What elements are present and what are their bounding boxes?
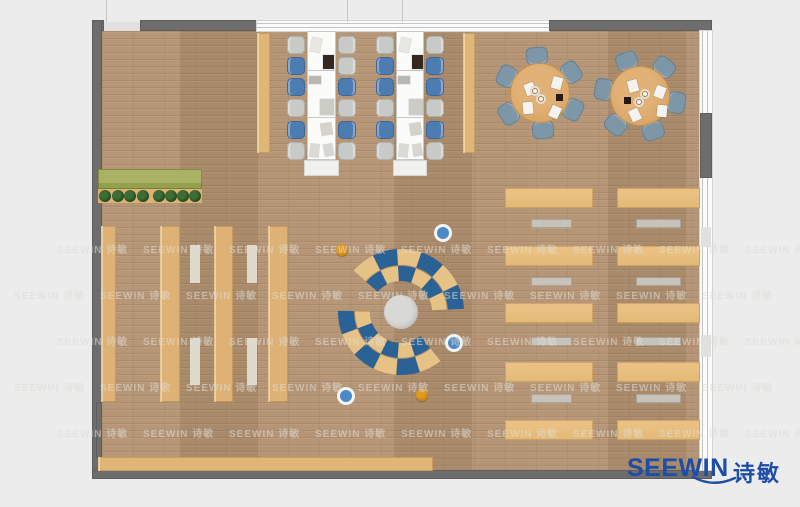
wall-top-light-gap	[104, 22, 140, 31]
watermark-text: SEEWIN 诗敏	[573, 333, 644, 348]
watermark-text: SEEWIN 诗敏	[143, 241, 214, 256]
office-chair	[287, 36, 305, 54]
watermark-text: SEEWIN 诗敏	[401, 333, 472, 348]
table-dark-item	[624, 97, 631, 104]
workstation-desk-divider-1-0	[396, 70, 424, 71]
watermark-text: SEEWIN 诗敏	[57, 333, 128, 348]
watermark-text: SEEWIN 诗敏	[702, 287, 773, 302]
window-mullion-2	[402, 0, 403, 22]
watermark-text: SEEWIN 诗敏	[487, 241, 558, 256]
watermark-text: SEEWIN 诗敏	[702, 379, 773, 394]
office-chair	[287, 99, 305, 117]
watermark-text: SEEWIN 诗敏	[14, 379, 85, 394]
watermark-text: SEEWIN 诗敏	[315, 425, 386, 440]
office-chair	[376, 36, 394, 54]
office-chair	[338, 99, 356, 117]
watermark-text: SEEWIN 诗敏	[315, 241, 386, 256]
watermark-text: SEEWIN 诗敏	[229, 241, 300, 256]
tree-icon-1	[112, 190, 124, 202]
desk-item-1-3	[409, 99, 423, 115]
watermark-text: SEEWIN 诗敏	[530, 379, 601, 394]
desk-item-0-3	[320, 99, 334, 115]
office-chair	[338, 36, 356, 54]
table-paper	[656, 105, 667, 118]
bottom-wall-shelf	[98, 457, 433, 471]
watermark-text: SEEWIN 诗敏	[272, 379, 343, 394]
workstation-desk-divider-1-1	[396, 117, 424, 118]
watermark-text: SEEWIN 诗敏	[745, 425, 800, 440]
watermark-text: SEEWIN 诗敏	[57, 241, 128, 256]
brand-logo: SEEWIN 诗敏	[627, 450, 797, 494]
tree-icon-5	[165, 190, 177, 202]
office-chair	[376, 99, 394, 117]
study-desk-0-0	[505, 188, 593, 208]
desk-item-1-1	[412, 55, 423, 69]
office-chair	[376, 78, 394, 96]
brand-logo-chinese: 诗敏	[733, 456, 781, 488]
workstation-side-bench-1	[463, 33, 475, 153]
watermark-text: SEEWIN 诗敏	[272, 287, 343, 302]
brand-swoosh-icon	[691, 475, 737, 487]
office-chair	[338, 78, 356, 96]
office-chair	[287, 78, 305, 96]
office-chair	[338, 121, 356, 139]
desk-item-0-1	[323, 55, 334, 69]
desk-item-1-5	[398, 144, 408, 158]
watermark-text: SEEWIN 诗敏	[358, 287, 429, 302]
wall-right-solid	[700, 113, 712, 178]
watermark-text: SEEWIN 诗敏	[143, 333, 214, 348]
watermark-text: SEEWIN 诗敏	[745, 241, 800, 256]
desk-item-0-5	[309, 144, 319, 158]
watermark-text: SEEWIN 诗敏	[358, 379, 429, 394]
office-chair	[376, 57, 394, 75]
office-chair	[376, 121, 394, 139]
bench-0-0	[531, 219, 572, 228]
office-chair	[338, 57, 356, 75]
bench-1-3	[636, 394, 681, 403]
watermark-text: SEEWIN 诗敏	[444, 379, 515, 394]
window-mullion-0	[106, 0, 107, 22]
watermark-text: SEEWIN 诗敏	[186, 287, 257, 302]
wall-bottom	[92, 470, 712, 479]
desk-item-0-2	[309, 76, 321, 84]
watermark-text: SEEWIN 诗敏	[14, 287, 85, 302]
watermark-text: SEEWIN 诗敏	[745, 333, 800, 348]
watermark-text: SEEWIN 诗敏	[444, 287, 515, 302]
tree-icon-0	[99, 190, 111, 202]
workstation-side-bench-0	[257, 33, 270, 153]
desk-item-0-6	[323, 143, 334, 156]
office-chair	[287, 142, 305, 160]
watermark-text: SEEWIN 诗敏	[487, 333, 558, 348]
watermark-text: SEEWIN 诗敏	[659, 333, 730, 348]
workstation-desk-divider-0-1	[307, 117, 336, 118]
watermark-text: SEEWIN 诗敏	[616, 379, 687, 394]
desk-item-1-2	[398, 76, 410, 84]
tree-icon-2	[124, 190, 136, 202]
wall-top-a	[140, 20, 257, 31]
office-chair	[426, 36, 444, 54]
study-desk-0-2	[505, 303, 593, 323]
table-paper	[522, 102, 533, 115]
planter-box	[98, 169, 202, 189]
tree-icon-3	[137, 190, 149, 202]
desk-item-1-6	[412, 143, 423, 156]
floorplan: SEEWIN 诗敏SEEWIN 诗敏SEEWIN 诗敏SEEWIN 诗敏SEEW…	[0, 0, 800, 507]
watermark-text: SEEWIN 诗敏	[100, 287, 171, 302]
table-plate	[536, 94, 546, 104]
office-chair	[376, 142, 394, 160]
study-desk-1-0	[617, 188, 700, 208]
tree-icon-4	[153, 190, 165, 202]
watermark-text: SEEWIN 诗敏	[57, 425, 128, 440]
bench-0-3	[531, 394, 572, 403]
office-chair	[426, 121, 444, 139]
watermark-text: SEEWIN 诗敏	[530, 287, 601, 302]
table-dark-item	[556, 94, 563, 101]
office-chair	[338, 142, 356, 160]
watermark-text: SEEWIN 诗敏	[573, 425, 644, 440]
round-table-0	[510, 63, 570, 123]
tree-icon-6	[177, 190, 189, 202]
workstation-desk-divider-0-0	[307, 70, 336, 71]
watermark-text: SEEWIN 诗敏	[401, 425, 472, 440]
desk-item-0-4	[320, 122, 333, 135]
office-chair	[287, 121, 305, 139]
watermark-text: SEEWIN 诗敏	[186, 379, 257, 394]
window-mullion-1	[347, 0, 348, 22]
watermark-text: SEEWIN 诗敏	[659, 241, 730, 256]
office-chair	[426, 99, 444, 117]
window-top	[257, 21, 549, 31]
watermark-text: SEEWIN 诗敏	[100, 379, 171, 394]
office-chair	[426, 142, 444, 160]
watermark-text: SEEWIN 诗敏	[143, 425, 214, 440]
watermark-text: SEEWIN 诗敏	[315, 333, 386, 348]
floorplan-canvas: SEEWIN 诗敏SEEWIN 诗敏SEEWIN 诗敏SEEWIN 诗敏SEEW…	[0, 0, 800, 507]
watermark-text: SEEWIN 诗敏	[573, 241, 644, 256]
bench-0-1	[531, 277, 572, 286]
watermark-text: SEEWIN 诗敏	[229, 425, 300, 440]
workstation-cabinet-1	[393, 160, 427, 176]
tree-icon-7	[189, 190, 201, 202]
office-chair	[287, 57, 305, 75]
desk-item-1-4	[409, 122, 422, 135]
stool-blue-core-1	[437, 227, 449, 239]
watermark-text: SEEWIN 诗敏	[401, 241, 472, 256]
office-chair	[426, 57, 444, 75]
workstation-cabinet-0	[304, 160, 339, 176]
watermark-text: SEEWIN 诗敏	[229, 333, 300, 348]
watermark-text: SEEWIN 诗敏	[487, 425, 558, 440]
table-plate	[634, 97, 644, 107]
watermark-text: SEEWIN 诗敏	[659, 425, 730, 440]
bench-1-0	[636, 219, 681, 228]
wall-top-b	[549, 20, 712, 31]
office-chair	[426, 78, 444, 96]
watermark-text: SEEWIN 诗敏	[616, 287, 687, 302]
bench-1-1	[636, 277, 681, 286]
study-desk-1-2	[617, 303, 700, 323]
